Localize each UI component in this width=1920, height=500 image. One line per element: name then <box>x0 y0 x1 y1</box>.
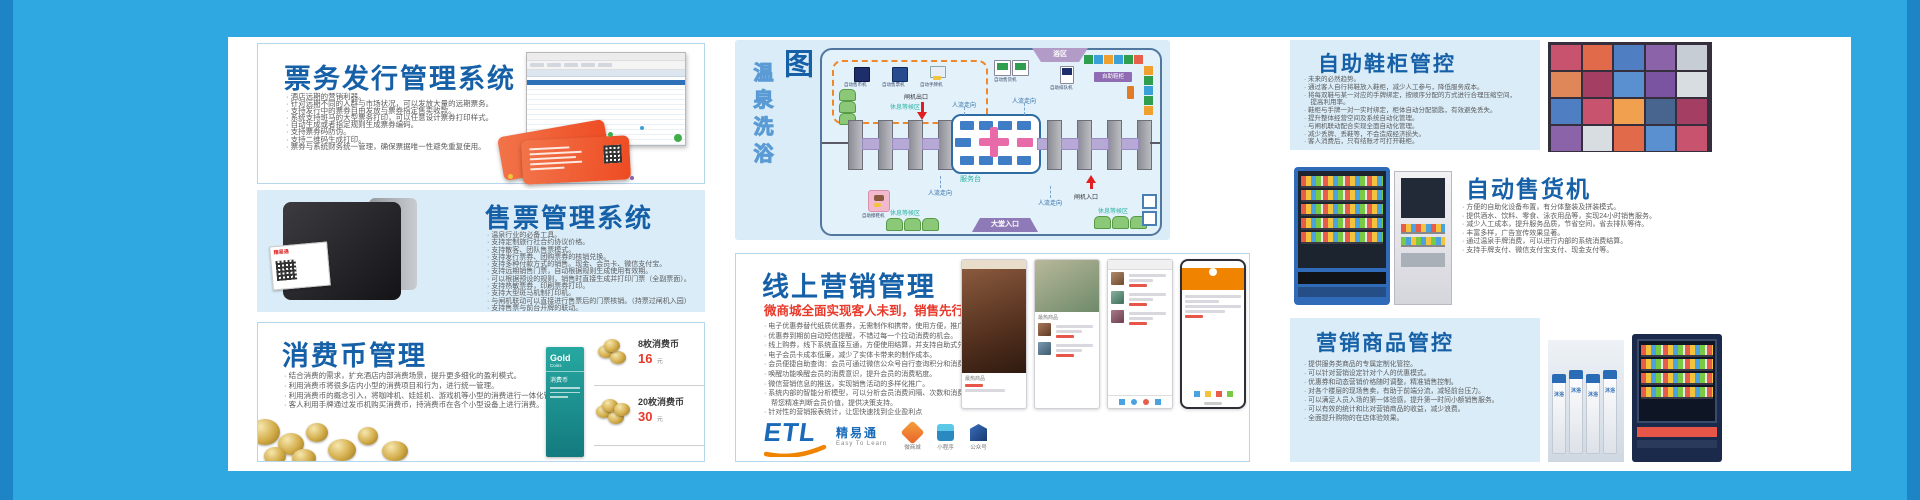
app-icon-item: 小程序 <box>937 424 954 451</box>
bullet-list: · 结合消费的需求，扩充酒店内部消费场景，提升更多细化的盈利模式。· 利用消费币… <box>284 371 581 410</box>
machine-label: 自动售票机 <box>882 82 905 88</box>
app-icon-item: 公众号 <box>970 424 987 451</box>
app-icon-item: 微商城 <box>904 424 921 451</box>
price-item: 20枚消费币 30 元 <box>604 395 705 426</box>
panel-online-marketing: 线上营销管理 微商城全面实现客人未到，销售先行的理念 · 电子优惠券替代纸质优惠… <box>735 253 1250 462</box>
vending-label: 自动售货机 <box>994 77 1017 83</box>
app-icons: 微商城 小程序 公众号 <box>904 424 987 451</box>
gate-exit-label: 闸机出口 <box>904 92 928 101</box>
window-titlebar <box>527 53 685 61</box>
panel-coin: 消费币管理 · 结合消费的需求，扩充酒店内部消费场景，提升更多细化的盈利模式。·… <box>257 322 705 462</box>
rest-area-label: 休息等候区 <box>890 208 920 217</box>
locker-strip-right <box>1144 66 1154 118</box>
qr-code <box>603 145 622 164</box>
shoe-locker-label: 自助鞋柜 <box>1094 72 1132 82</box>
bullet-list: · 方便的自助化设备布置，有分体整装及拼装模式。· 提供酒水、饮料、零食、泳衣用… <box>1462 204 1656 256</box>
etl-logo: ETL 精易通 Easy To Learn <box>764 420 887 462</box>
phone-frame-screenshot <box>1180 259 1246 409</box>
app-screenshot-list: 最热商品 <box>1034 259 1100 409</box>
brand-tagline: Easy To Learn <box>836 441 887 447</box>
status-dot-icon <box>674 134 682 142</box>
panel-title: 售票管理系统 <box>485 198 653 235</box>
panel-title: 自助鞋柜管控 <box>1318 48 1456 78</box>
service-desk-label: 服务台 <box>960 174 981 184</box>
ticket-card-front <box>521 135 631 185</box>
storage-locker <box>1142 211 1157 226</box>
selected-row <box>527 80 685 85</box>
shoe-shine-label: 自助擦鞋机 <box>862 213 885 219</box>
brand-name: 精易通 <box>836 424 887 441</box>
panel-title: 线上营销管理 <box>762 265 936 304</box>
bullet-list: · 酒店远期的营销利器。· 针对远期不同的人群与市场状况，可以发放大量的远期票务… <box>286 93 493 150</box>
shoe-shine-machine <box>868 190 890 212</box>
gold-card: Gold Coins 消费币 <box>546 347 584 457</box>
locker-strip-top <box>1084 55 1148 65</box>
rest-area-label: 休息等候区 <box>890 102 920 111</box>
right-edge-band <box>1907 0 1920 500</box>
panel-shoe-locker: 自助鞋柜管控 · 未来的必然趋势。· 通过客人自行将鞋放入鞋柜，减少人工参与，降… <box>1290 40 1540 150</box>
app-screenshot-list <box>1107 259 1173 409</box>
flow-subtitle-vertical: 温泉洗浴 <box>747 62 776 170</box>
etl-logo-text: ETL <box>762 420 829 444</box>
panel-goods-control: 营销商品管控 · 提供服务类商品的专属定制化管控。· 可以针对营销设定针对个人的… <box>1290 318 1540 462</box>
bath-zone: 浴区 <box>1032 48 1088 62</box>
gate-entry-label: 闸机入口 <box>1074 192 1098 201</box>
bullet-list: · 提供服务类商品的专属定制化管控。· 可以针对营销设定针对个人的优惠模式。· … <box>1304 360 1498 423</box>
brochure-poster: 票务发行管理系统 · 酒店远期的营销利器。· 针对远期不同的人群与市场状况，可以… <box>0 0 1920 500</box>
flow-diagram: 自动售币机 自动售票机 自动手牌机 休息等候区 自动售货机 浴区 自助排队机 自… <box>820 48 1162 236</box>
storage-locker <box>1142 194 1157 209</box>
machine-label: 自动售币机 <box>844 82 867 88</box>
diamond-icon <box>900 420 924 444</box>
panel-ticket-issue: 票务发行管理系统 · 酒店远期的营销利器。· 针对远期不同的人群与市场状况，可以… <box>257 43 705 184</box>
panel-title: 自动售货机 <box>1466 170 1591 204</box>
bullet-list: · 未来的必然趋势。· 通过客人自行将鞋放入鞋柜，减少人工参与，降低服务成本。·… <box>1304 76 1516 146</box>
goods-vending-photo <box>1632 334 1722 462</box>
flow-direction-label: 人流走向 <box>928 188 952 197</box>
locker-photo <box>1548 42 1712 152</box>
left-edge-band <box>0 0 13 500</box>
label-qr-code <box>275 259 297 281</box>
rest-area-label: 休息等候区 <box>1098 206 1128 215</box>
app-screenshot-photo: 最热商品 <box>961 259 1027 409</box>
shield-icon <box>970 424 987 441</box>
panel-title: 票务发行管理系统 <box>284 57 516 96</box>
vending-machine-white <box>1394 171 1452 305</box>
vending-machine-blue <box>1294 167 1390 305</box>
flow-direction-label: 人流走向 <box>1038 198 1062 207</box>
panel-vending: 自动售货机 · 方便的自助化设备布置，有分体整装及拼装模式。· 提供酒水、饮料、… <box>1290 163 1720 308</box>
service-island <box>951 114 1041 174</box>
bullet-list: · 电子优惠券替代纸质优惠券，无需制作和携带，使用方便，推广迅速· 优惠券到期前… <box>764 322 985 418</box>
panel-flow-chart: 温泉洗浴 自助化流程图 自动售币机 自动售票机 自动手牌机 休息等候区 自动售货… <box>735 40 1170 240</box>
printer-photo: 精易通 <box>269 196 425 306</box>
panel-ticket-sale: 售票管理系统 · 温泉行业的必备工具。· 支持定制旅行社合约协议价格。· 支持散… <box>257 190 705 312</box>
column-headers <box>527 70 685 77</box>
machine-label: 自动手牌机 <box>920 82 943 88</box>
bullet-list: · 温泉行业的必备工具。· 支持定制旅行社合约协议价格。· 支持散客、团队售票模… <box>487 232 691 312</box>
printer-label: 精易通 <box>269 242 331 291</box>
cube-icon <box>937 424 954 441</box>
bottles-photo: 沐浴 沐浴 沐浴 沐浴 <box>1548 340 1624 462</box>
lobby-entrance: 大堂入口 <box>972 218 1038 232</box>
toolbar <box>527 61 685 70</box>
price-item: 8枚消费币 16 元 <box>604 337 705 368</box>
panel-title: 营销商品管控 <box>1316 327 1454 357</box>
queue-machine-label: 自助排队机 <box>1050 85 1073 91</box>
panel-title: 消费币管理 <box>282 334 427 373</box>
